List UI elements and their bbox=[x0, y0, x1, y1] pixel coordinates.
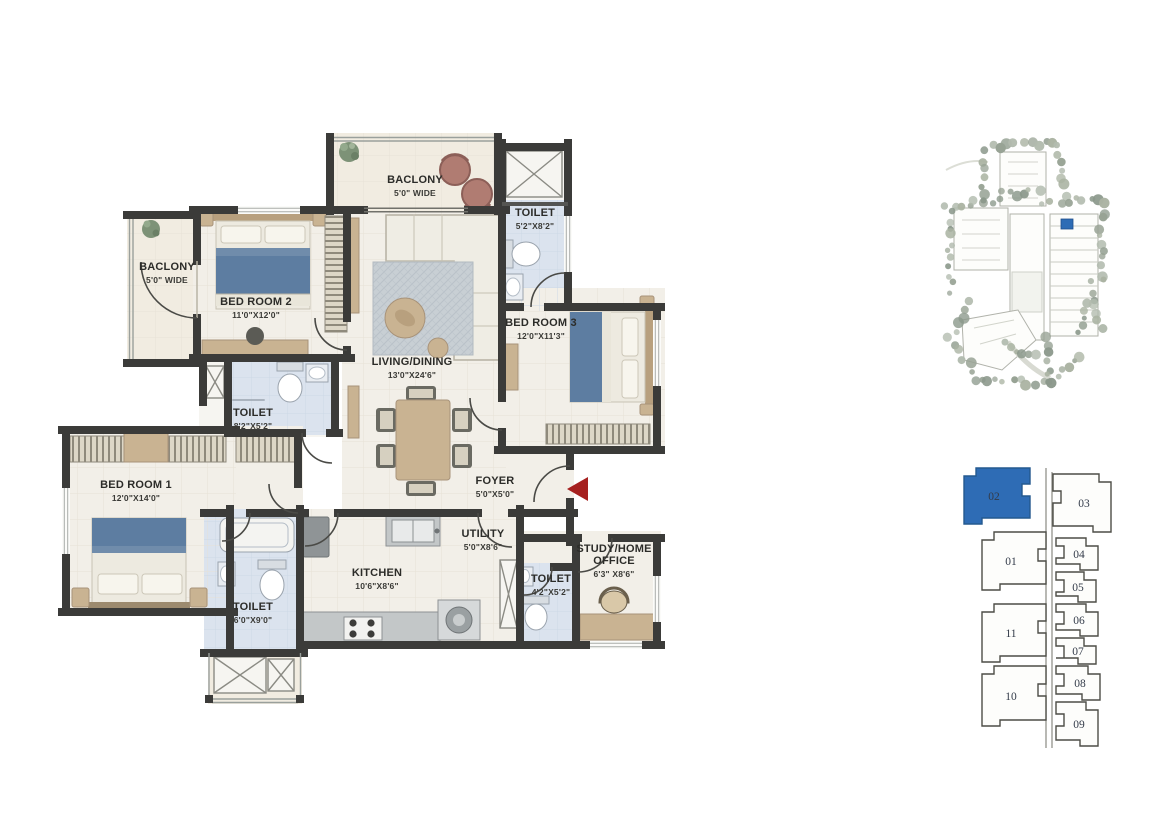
room-dim: 12'0"X11'3" bbox=[505, 331, 577, 341]
room-dim: 5'2"X8'2" bbox=[515, 221, 555, 231]
room-dim: 6'0"X9'0" bbox=[233, 615, 273, 625]
room-dim: 5'0"X5'0" bbox=[476, 489, 515, 499]
room-name: STUDY/HOME OFFICE bbox=[565, 543, 663, 567]
room-dim: 5'0" WIDE bbox=[139, 275, 195, 285]
room-label: LIVING/DINING 13'0"X24'6" bbox=[372, 356, 453, 380]
room-name: TOILET bbox=[233, 407, 273, 419]
room-dim: 10'6"X8'6" bbox=[352, 581, 402, 591]
room-label: UTILITY 5'0"X8'6" bbox=[462, 528, 505, 552]
room-label: KITCHEN 10'6"X8'6" bbox=[352, 567, 402, 591]
room-name: TOILET bbox=[233, 601, 273, 613]
room-label: BED ROOM 2 11'0"X12'0" bbox=[220, 296, 292, 320]
room-label: BED ROOM 1 12'0"X14'0" bbox=[100, 479, 172, 503]
room-name: UTILITY bbox=[462, 528, 505, 540]
room-labels: BACLONY 5'0" WIDE TOILET 5'2"X8'2" BACLO… bbox=[0, 0, 1170, 830]
room-label: BACLONY 5'0" WIDE bbox=[387, 174, 443, 198]
room-label: STUDY/HOME OFFICE 6'3" X8'6" bbox=[565, 543, 663, 579]
room-dim: 4'2"X5'2" bbox=[531, 587, 571, 597]
room-name: BED ROOM 2 bbox=[220, 296, 292, 308]
room-name: LIVING/DINING bbox=[372, 356, 453, 368]
room-label: TOILET 5'2"X8'2" bbox=[515, 207, 555, 231]
room-name: BED ROOM 1 bbox=[100, 479, 172, 491]
room-dim: 13'0"X24'6" bbox=[372, 370, 453, 380]
room-label: BED ROOM 3 12'0"X11'3" bbox=[505, 317, 577, 341]
room-dim: 11'0"X12'0" bbox=[220, 310, 292, 320]
room-name: BACLONY bbox=[387, 174, 443, 186]
room-name: BED ROOM 3 bbox=[505, 317, 577, 329]
room-name: FOYER bbox=[476, 475, 515, 487]
room-label: BACLONY 5'0" WIDE bbox=[139, 261, 195, 285]
room-dim: 5'0"X8'6" bbox=[462, 542, 505, 552]
room-name: KITCHEN bbox=[352, 567, 402, 579]
room-label: FOYER 5'0"X5'0" bbox=[476, 475, 515, 499]
room-label: TOILET 8'2"X5'2" bbox=[233, 407, 273, 431]
floorplan-sheet: 0203010405110607100809 BACLONY 5'0" WIDE… bbox=[0, 0, 1170, 830]
room-name: TOILET bbox=[515, 207, 555, 219]
room-name: BACLONY bbox=[139, 261, 195, 273]
room-dim: 5'0" WIDE bbox=[387, 188, 443, 198]
room-label: TOILET 6'0"X9'0" bbox=[233, 601, 273, 625]
room-dim: 12'0"X14'0" bbox=[100, 493, 172, 503]
room-dim: 6'3" X8'6" bbox=[565, 569, 663, 579]
room-dim: 8'2"X5'2" bbox=[233, 421, 273, 431]
